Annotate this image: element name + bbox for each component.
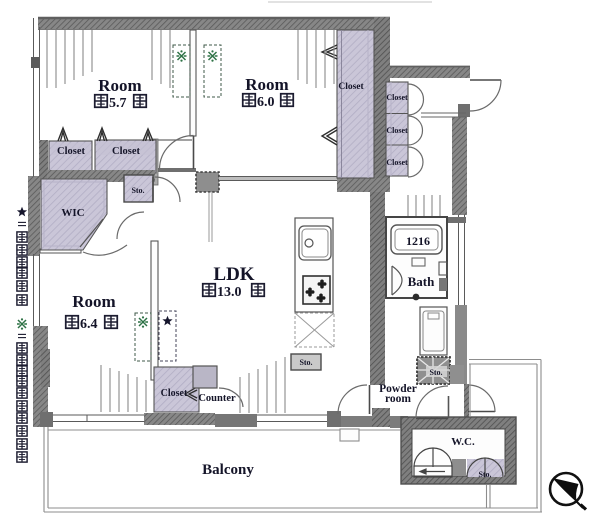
svg-text:Sto.: Sto. [478,470,491,479]
svg-text:Sto.: Sto. [429,368,442,377]
svg-text:6.4: 6.4 [80,317,98,332]
svg-text:13.0: 13.0 [217,285,242,300]
svg-text:Closet: Closet [386,93,408,102]
svg-text:Sto.: Sto. [131,186,144,195]
svg-text:Bath: Bath [408,274,436,289]
svg-text:1216: 1216 [406,234,430,248]
svg-text:LDK: LDK [213,264,254,285]
svg-text:Closet: Closet [338,82,364,92]
svg-text:Counter: Counter [198,393,236,404]
svg-text:5.7: 5.7 [109,96,127,111]
svg-text:Room: Room [72,292,115,311]
svg-text:Sto.: Sto. [299,358,312,367]
svg-text:WIC: WIC [61,207,84,219]
svg-text:Room: Room [98,76,141,95]
svg-text:W.C.: W.C. [451,436,475,448]
svg-text:Closet: Closet [386,126,408,135]
svg-text:Closet: Closet [112,146,140,157]
svg-text:Room: Room [245,75,288,94]
svg-text:room: room [385,393,411,405]
svg-text:Closet: Closet [386,158,408,167]
svg-text:Closet: Closet [57,146,85,157]
svg-text:6.0: 6.0 [257,95,275,110]
svg-text:Balcony: Balcony [202,462,254,478]
svg-text:Closet: Closet [161,388,188,399]
